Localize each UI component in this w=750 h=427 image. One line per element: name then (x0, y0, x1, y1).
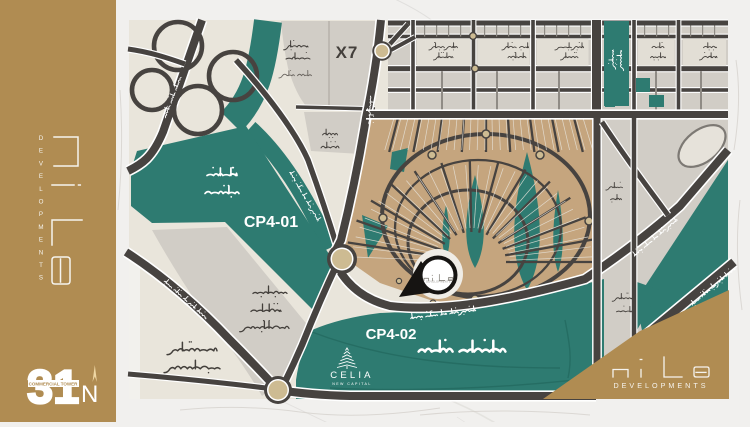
svg-text:NEW CAPITAL: NEW CAPITAL (332, 382, 372, 386)
svg-text:E: E (39, 148, 43, 155)
svg-text:O: O (39, 199, 44, 206)
svg-text:P: P (39, 211, 43, 218)
svg-text:N: N (39, 249, 43, 256)
svg-text:DEVELOPMENTS: DEVELOPMENTS (426, 281, 450, 284)
svg-text:E: E (39, 173, 43, 180)
svg-text:T: T (39, 262, 43, 269)
svg-text:L: L (39, 186, 43, 193)
svg-text:CELIA: CELIA (330, 370, 373, 381)
svg-text:D: D (39, 135, 44, 142)
svg-text:COMMERCIAL TOWER: COMMERCIAL TOWER (29, 382, 79, 387)
svg-text:E: E (39, 237, 43, 244)
svg-text:N: N (81, 381, 98, 408)
svg-text:CP4-01: CP4-01 (244, 214, 298, 231)
svg-text:CP4-02: CP4-02 (366, 326, 417, 343)
svg-text:X7: X7 (336, 43, 359, 62)
svg-text:DEVELOPMENTS: DEVELOPMENTS (613, 381, 708, 390)
svg-text:M: M (38, 224, 43, 231)
svg-text:S: S (39, 275, 43, 282)
